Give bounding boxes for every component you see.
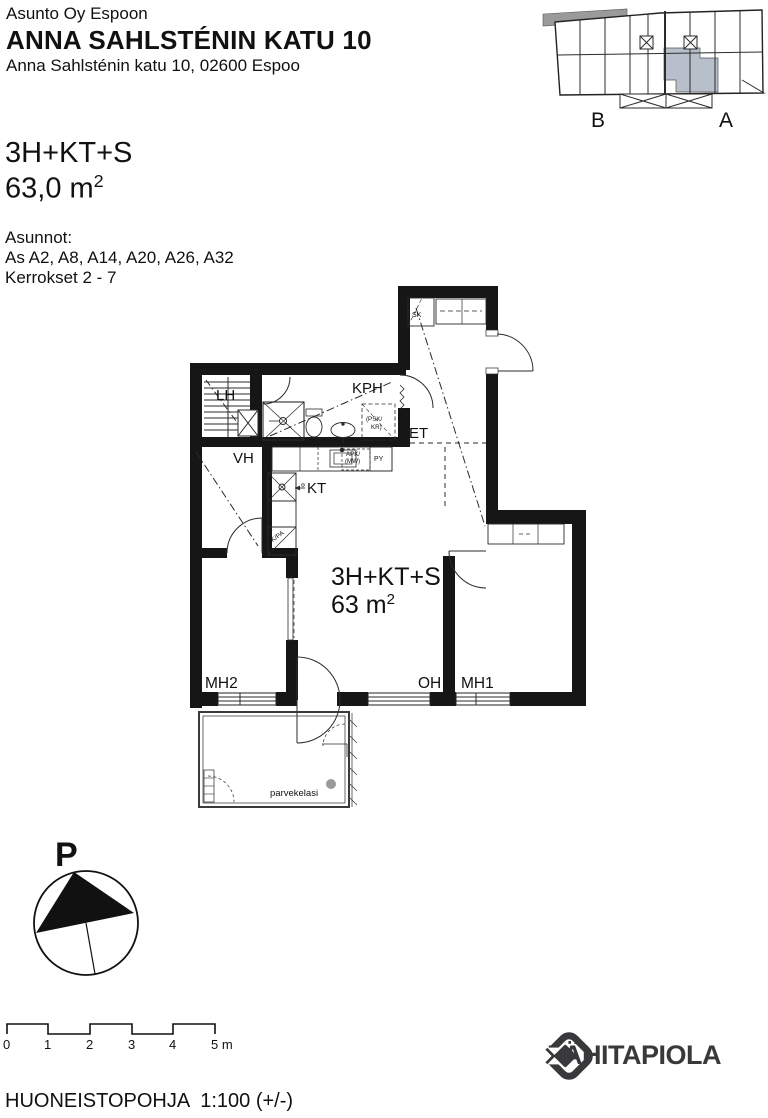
compass: P — [20, 830, 160, 990]
scale-tick-1: 1 — [44, 1037, 51, 1052]
kitchen-cabinet — [268, 501, 296, 527]
mh1-wardrobe — [488, 524, 564, 544]
mh2-window — [218, 693, 276, 705]
site-plan-building — [543, 9, 764, 108]
psk-kr-label-2: KR) — [371, 424, 382, 431]
oh-window — [368, 693, 430, 705]
plan-center-label: 3H+KT+S 63 m2 — [331, 563, 441, 619]
room-label-mh2: MH2 — [205, 675, 238, 692]
scale-tick-0: 0 — [3, 1037, 10, 1052]
units-heading: Asunnot: — [5, 228, 234, 248]
apartment-type: 3H+KT+S — [5, 136, 234, 171]
brand-logo: LÄHITAPIOLA — [541, 1040, 721, 1071]
north-arrow — [36, 872, 134, 933]
room-label-oh: OH — [418, 675, 441, 692]
mh2-sliding-door — [288, 578, 294, 640]
north-label: P — [55, 836, 78, 874]
staircase — [204, 377, 258, 437]
room-label-lh: LH — [216, 387, 235, 404]
compass-tail — [86, 923, 95, 974]
scale-bar-labels: 0 1 2 3 4 5 m — [3, 1037, 233, 1052]
balcony-bench — [204, 770, 214, 802]
balcony-door — [297, 657, 340, 743]
plan-area-superscript: 2 — [387, 591, 395, 608]
mh1-window — [456, 693, 510, 705]
plan-area-value: 63 m — [331, 591, 387, 619]
room-label-balcony: parvekelasi — [270, 788, 318, 799]
housing-company-name: Asunto Oy Espoon — [6, 4, 372, 24]
room-label-kph: KPH — [352, 380, 383, 397]
floor-plan-drawing: LH KPH ET VH KT SK MH2 OH MH1 parvekelas… — [183, 280, 593, 820]
stairwell-b-label: B — [591, 109, 605, 132]
plan-title: HUONEISTOPOHJA 1:100 (+/-) — [5, 1090, 293, 1113]
scale-tick-3: 3 — [128, 1037, 135, 1052]
apk-label-2: (MW) — [345, 458, 360, 465]
room-label-et: ET — [409, 425, 428, 442]
site-plan-thumbnail: B A — [538, 0, 768, 132]
kph-door — [400, 375, 433, 409]
stove — [268, 473, 296, 501]
scale-bar: 0 1 2 3 4 5 m — [0, 1015, 260, 1060]
kitchen-fixtures — [268, 447, 392, 555]
psk-kr-label-1: (PSK/ — [366, 416, 382, 423]
apartment-area-superscript: 2 — [94, 171, 104, 191]
py-label: PY — [374, 456, 384, 463]
scale-tick-5: 5 m — [211, 1037, 233, 1052]
shower — [263, 402, 304, 440]
room-label-vh: VH — [233, 450, 254, 467]
room-label-sk: SK — [412, 312, 422, 319]
scale-bar-line — [7, 1024, 215, 1034]
balcony-glass-swing-right — [323, 724, 345, 746]
plan-type-label: 3H+KT+S — [331, 563, 441, 591]
apk-label-1: APK/ — [346, 451, 360, 458]
room-label-kt: KT — [307, 480, 326, 497]
balcony-side-hatch — [350, 720, 357, 805]
stairwell-a-label: A — [719, 109, 733, 132]
street-address: Anna Sahlsténin katu 10, 02600 Espoo — [6, 56, 372, 76]
shower-room-door — [263, 377, 290, 404]
units-list: As A2, A8, A14, A20, A26, A32 — [5, 248, 234, 268]
lahitapiola-icon — [541, 1028, 597, 1084]
balcony-drain — [326, 779, 336, 789]
hall-wardrobe — [436, 299, 486, 324]
balcony-glass-swing-left — [208, 776, 234, 802]
vh-door — [227, 518, 262, 553]
scale-tick-4: 4 — [169, 1037, 176, 1052]
apartment-area: 63,0 m2 — [5, 171, 234, 206]
page-title: ANNA SAHLSTÉNIN KATU 10 — [6, 26, 372, 56]
floor-plan-sheet: Asunto Oy Espoon ANNA SAHLSTÉNIN KATU 10… — [0, 0, 768, 1118]
plan-area-label: 63 m2 — [331, 591, 395, 619]
header: Asunto Oy Espoon ANNA SAHLSTÉNIN KATU 10… — [6, 4, 372, 76]
room-label-mh1: MH1 — [461, 675, 494, 692]
entry-door — [486, 330, 533, 374]
apartment-info: 3H+KT+S 63,0 m2 Asunnot: As A2, A8, A14,… — [5, 136, 234, 288]
scale-tick-2: 2 — [86, 1037, 93, 1052]
apartment-area-value: 63,0 m — [5, 172, 94, 204]
toilet — [306, 409, 322, 437]
